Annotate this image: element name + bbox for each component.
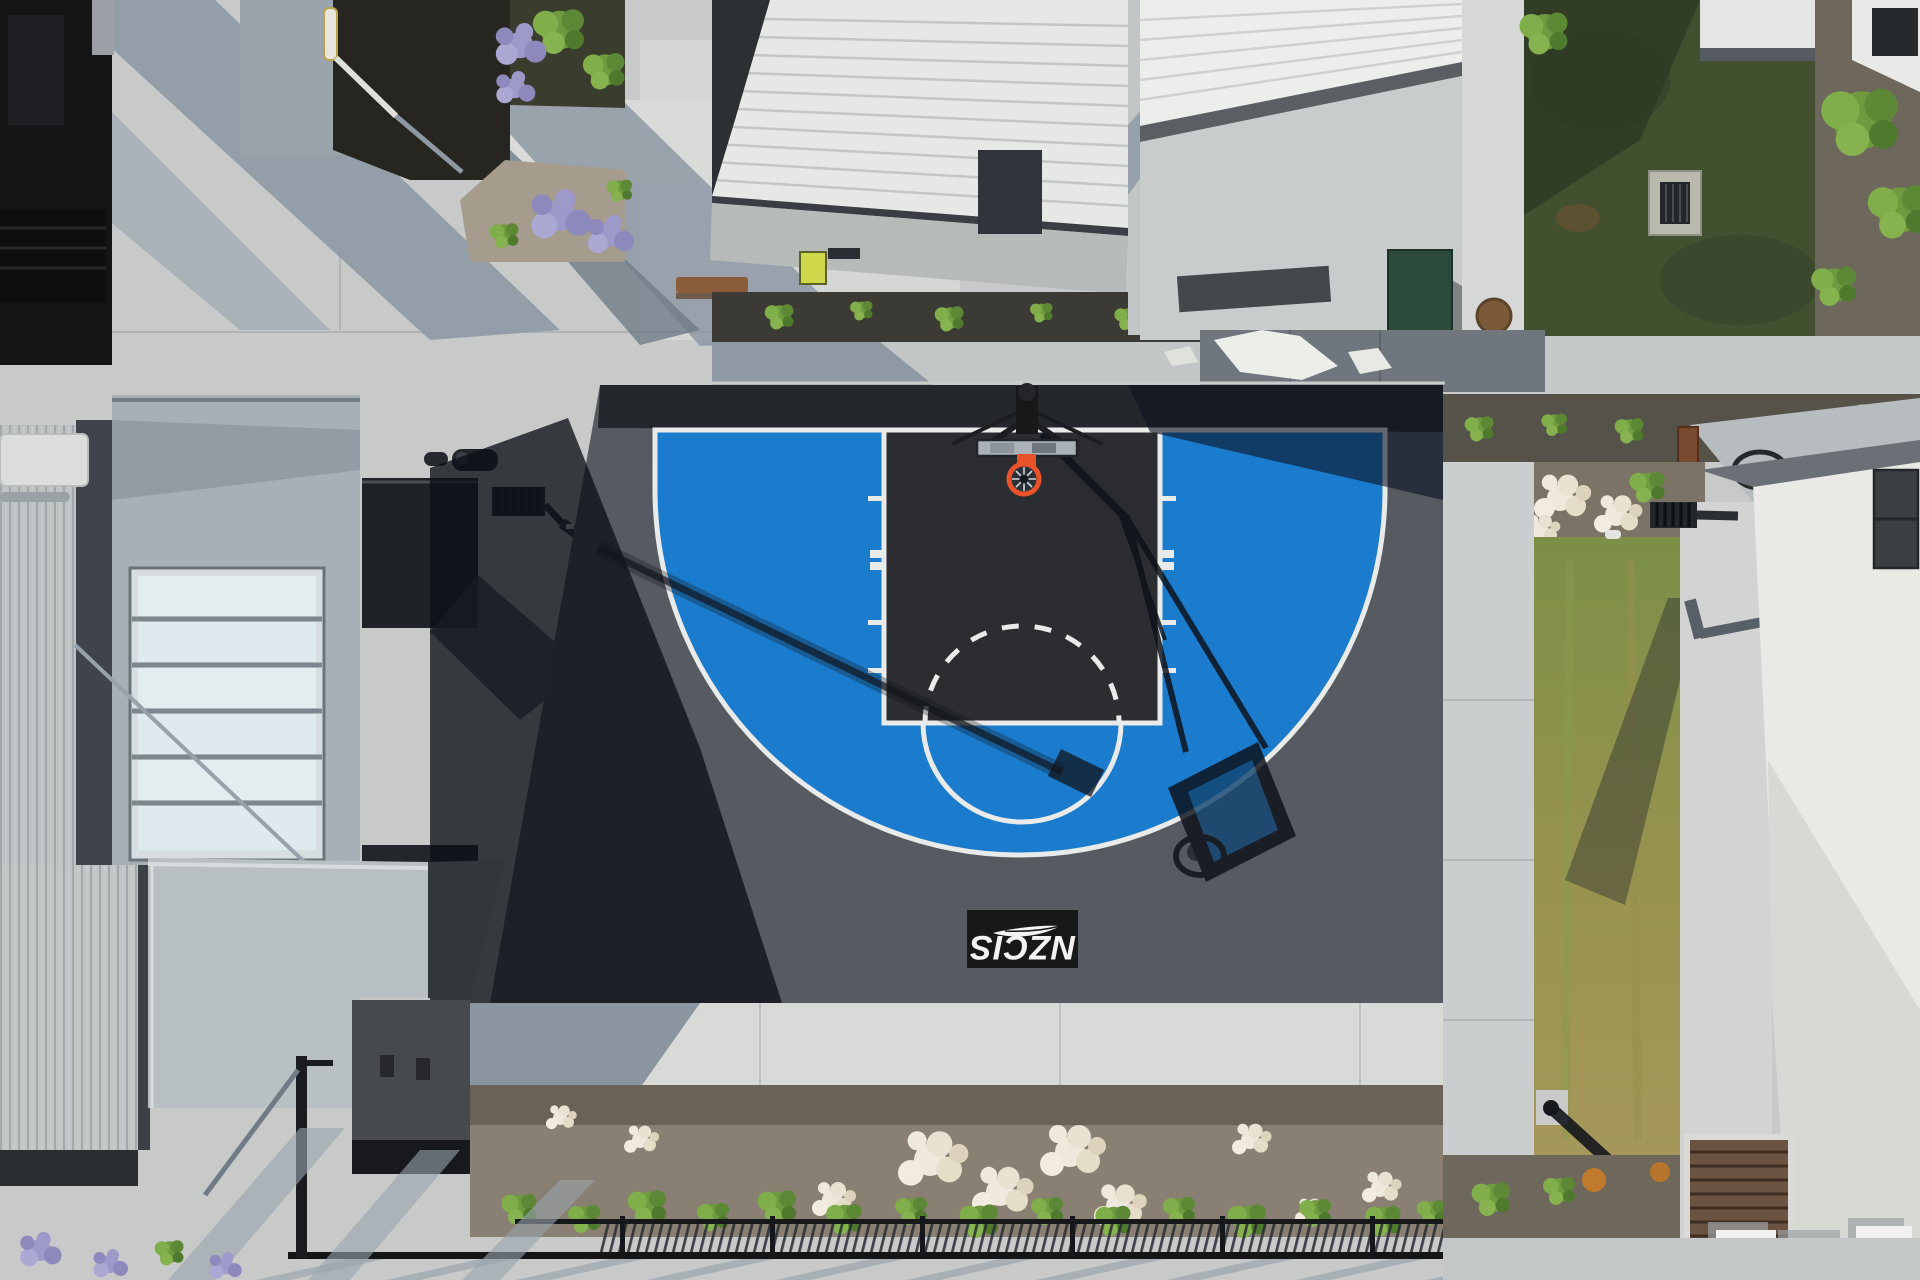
balcony-recess — [0, 210, 106, 302]
walkway — [1462, 0, 1524, 340]
wall-sign — [828, 248, 860, 259]
manhole-cover — [1477, 299, 1511, 333]
aed-box — [800, 252, 826, 284]
bollard-light — [324, 8, 337, 60]
window-opening — [978, 150, 1042, 234]
gate-bar — [307, 1060, 333, 1066]
wall-vent — [380, 1055, 394, 1077]
lawn-shade — [1660, 235, 1820, 325]
eave-fascia — [0, 1150, 138, 1186]
basketball-court: NZCIS — [430, 383, 1445, 1003]
right-side — [1443, 394, 1920, 1280]
roof-panel — [8, 15, 64, 125]
drain-grate — [1660, 182, 1690, 224]
topleft-building — [0, 0, 114, 365]
walkway — [1443, 1238, 1920, 1280]
pole-cap — [1018, 383, 1036, 401]
picnic-table — [0, 434, 88, 486]
timber-bench — [676, 277, 748, 293]
dark-brick-wall — [352, 1000, 470, 1140]
topright-area — [1128, 0, 1920, 396]
table-bench — [0, 492, 70, 502]
mow-line — [1565, 560, 1570, 1140]
mulch-dark-strip — [470, 1085, 1445, 1125]
backboard-detail — [990, 443, 1014, 453]
topcenter-building — [676, 0, 1202, 392]
court-logo: NZCIS — [967, 910, 1078, 968]
roof-tint — [0, 425, 78, 865]
roof-tint — [0, 865, 138, 1155]
orange-grass-tuft — [1650, 1162, 1670, 1182]
aerial-photo: NZCIS — [0, 0, 1920, 1280]
pole-shaft — [1697, 515, 1738, 516]
net-hole — [1020, 475, 1029, 484]
parapet-cap — [92, 0, 114, 55]
bare-patch — [1556, 204, 1600, 232]
scene-canvas: NZCIS — [0, 0, 1920, 1280]
walkway — [1545, 336, 1920, 396]
building-opening — [1872, 8, 1918, 56]
wall-vent — [416, 1058, 430, 1080]
walkway — [1443, 462, 1534, 1162]
bottom-garden-bed — [470, 1085, 1446, 1238]
backboard-detail — [1032, 443, 1056, 453]
dark-mulch-bed — [333, 0, 510, 180]
pole-bracket — [1605, 530, 1621, 539]
orange-grass-tuft — [1582, 1168, 1606, 1192]
